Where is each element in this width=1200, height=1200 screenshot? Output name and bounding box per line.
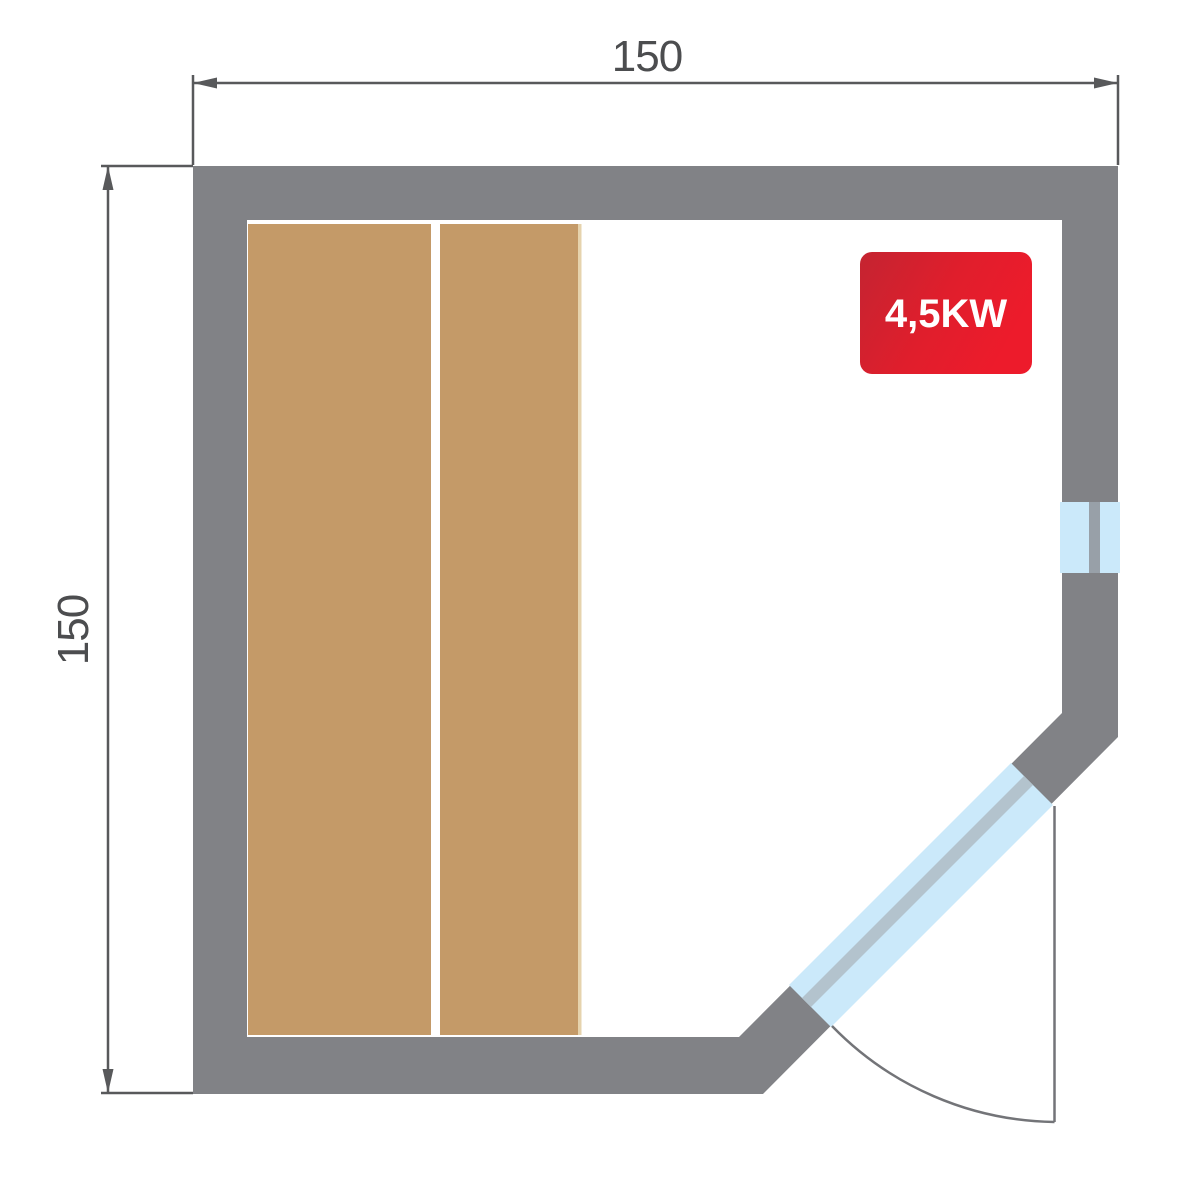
dimension-left-arrow-top <box>103 166 114 190</box>
heater-power-label: 4,5KW <box>885 292 1007 336</box>
dimension-left-label: 150 <box>49 595 98 665</box>
window-frame-divider <box>1089 502 1100 573</box>
heater-badge: 4,5KW <box>860 252 1032 374</box>
glass-door-frame <box>802 776 1033 1007</box>
dimension-left: 150 <box>49 166 193 1093</box>
bench-right <box>440 224 578 1035</box>
door-swing-arc <box>832 1026 1055 1122</box>
dimension-top-arrow-right <box>1094 78 1118 89</box>
dimension-top-arrow-left <box>193 78 217 89</box>
window-right-wall <box>1060 502 1120 573</box>
dimension-left-arrow-bottom <box>103 1069 114 1093</box>
bench-left <box>248 224 431 1035</box>
floor-plan-canvas: 4,5KW 150 150 <box>0 0 1200 1200</box>
bench-right-edge-highlight <box>578 224 582 1035</box>
corner-glass-door <box>789 763 1055 1122</box>
dimension-top: 150 <box>193 32 1118 165</box>
dimension-top-label: 150 <box>612 32 682 81</box>
floor-plan-page: 4,5KW 150 150 <box>0 0 1200 1200</box>
